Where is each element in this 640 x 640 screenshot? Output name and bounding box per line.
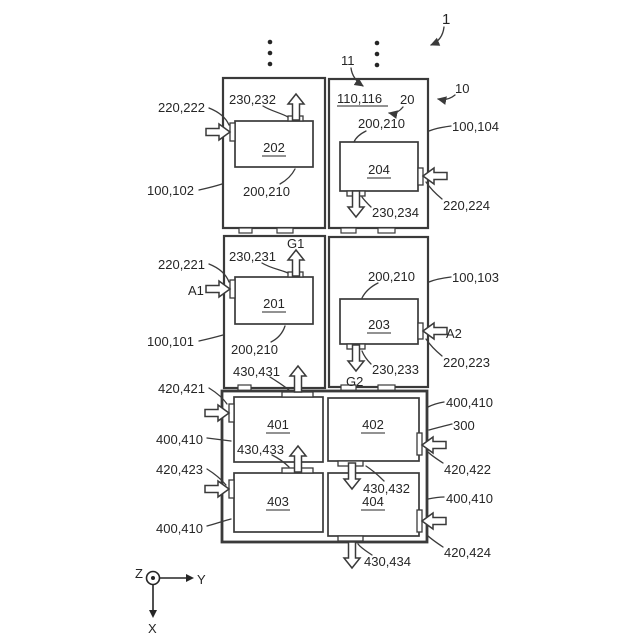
coordinate-axes: Z Y X	[135, 566, 206, 636]
label-outlet-434: 430,434	[364, 554, 411, 569]
label-axis-y: Y	[197, 572, 206, 587]
dot	[268, 40, 273, 45]
label-cell-203: 203	[368, 317, 390, 332]
gas-in-arrow-a2	[423, 323, 447, 339]
label-inlet-421: 420,421	[158, 381, 205, 396]
label-axis-x: X	[148, 621, 157, 636]
leader-200-210-tr	[354, 131, 366, 142]
pointer-11	[351, 68, 363, 86]
module-foot	[239, 228, 252, 233]
label-inlet-222: 220,222	[158, 100, 205, 115]
leader-400-410-lt	[207, 438, 231, 441]
label-unit-402: 402	[362, 417, 384, 432]
unit-404-bottom-tab	[338, 536, 363, 541]
label-inlet-223: 220,223	[443, 355, 490, 370]
flow-in-arrow-202	[206, 124, 230, 140]
leader-300	[429, 424, 452, 430]
coolant-out-arrow-434	[344, 542, 360, 568]
leader-400-410-rt	[428, 402, 444, 407]
flow-in-arrow-204	[423, 168, 447, 184]
label-assembly-1: 1	[442, 11, 450, 28]
dot	[268, 62, 273, 67]
stack-continues-ellipsis-right	[375, 41, 380, 68]
dot	[375, 63, 380, 68]
cell-204-right-tab	[418, 168, 423, 185]
label-outlet-433: 430,433	[237, 442, 284, 457]
label-module-10: 10	[455, 81, 469, 96]
leader-100-103	[429, 277, 451, 282]
label-unitref-rb: 400,410	[446, 491, 493, 506]
label-outlet-234: 230,234	[372, 205, 419, 220]
label-inlet-422: 420,422	[444, 462, 491, 477]
label-gas-out-g1: G1	[287, 236, 304, 251]
label-housing-101: 100,101	[147, 334, 194, 349]
label-gas-out-g2: G2	[346, 374, 363, 389]
label-unitref-lt: 400,410	[156, 432, 203, 447]
label-housing-104: 100,104	[452, 119, 499, 134]
module-top-right: 110,116 20 200,210 204 230,234 220,224 1…	[329, 79, 499, 233]
coolant-in-arrow-421	[205, 405, 229, 421]
y-axis-arrowhead-icon	[186, 574, 194, 582]
leader-200-210-tl	[280, 169, 295, 184]
stack-continues-ellipsis-left	[268, 40, 273, 67]
label-outlet-231: 230,231	[229, 249, 276, 264]
label-gas-in-a1: A1	[188, 283, 204, 298]
leader-400-410-rb	[428, 497, 444, 499]
leader-200-210-ml	[271, 326, 285, 342]
dot	[375, 52, 380, 57]
label-unit-403: 403	[267, 494, 289, 509]
patent-figure: 230,232 220,222 202 200,210 100,102 110,…	[0, 0, 640, 640]
x-axis-arrowhead-icon	[149, 610, 157, 618]
label-cell-202: 202	[263, 140, 285, 155]
label-cell-201: 201	[263, 296, 285, 311]
leader-100-104	[429, 126, 451, 131]
label-axis-z: Z	[135, 566, 143, 581]
label-inlet-221: 220,221	[158, 257, 205, 272]
dot	[268, 51, 273, 56]
module-top-left: 230,232 220,222 202 200,210 100,102	[147, 78, 325, 233]
leader-400-410-lb	[207, 519, 231, 526]
leader-100-101	[199, 335, 223, 341]
label-outlet-431: 430,431	[233, 364, 280, 379]
label-unitref-rt: 400,410	[446, 395, 493, 410]
label-gas-in-a2: A2	[446, 326, 462, 341]
dot	[375, 41, 380, 46]
label-spacer-ref: 20	[400, 92, 414, 107]
label-cells-ref: 110,116	[337, 91, 382, 106]
label-unit-401: 401	[267, 417, 289, 432]
module-foot	[341, 228, 356, 233]
label-cellref-mr: 200,210	[368, 269, 415, 284]
label-outlet-232: 230,232	[229, 92, 276, 107]
module-foot	[378, 228, 395, 233]
label-stack-11: 11	[341, 53, 355, 68]
label-inlet-423: 420,423	[156, 462, 203, 477]
label-cellref-ml: 200,210	[231, 342, 278, 357]
label-cellref-tr: 200,210	[358, 116, 405, 131]
leader-230-231	[262, 263, 288, 273]
label-unitref-lb: 400,410	[156, 521, 203, 536]
module-mid-right: 200,210 203 A2 220,223 230,233 G2 100,10…	[329, 237, 499, 391]
label-inlet-224: 220,224	[443, 198, 490, 213]
leader-420-422	[428, 452, 443, 463]
pointer-20	[389, 107, 403, 113]
cooling-assembly-300: 401 402 403 404 420,421 400,410 430,433 …	[156, 366, 493, 569]
label-cellref-tl: 200,210	[243, 184, 290, 199]
label-housing-103: 100,103	[452, 270, 499, 285]
gas-in-arrow-a1	[206, 281, 230, 297]
leader-100-102	[199, 184, 222, 190]
diagram-canvas: 230,232 220,222 202 200,210 100,102 110,…	[0, 0, 640, 640]
leader-230-234	[362, 197, 371, 207]
leader-220-221	[209, 264, 229, 282]
label-unit-404: 404	[362, 494, 384, 509]
leader-220-222	[209, 108, 229, 125]
label-outlet-432: 430,432	[363, 481, 410, 496]
label-housing-300: 300	[453, 418, 475, 433]
leader-420-424	[427, 535, 443, 547]
label-outlet-233: 230,233	[372, 362, 419, 377]
z-axis-dot	[151, 576, 155, 580]
assembly-references: 1 11 10	[341, 11, 469, 100]
leader-230-232	[263, 106, 288, 117]
leader-200-210-mr	[362, 283, 378, 298]
module-foot	[277, 228, 293, 233]
unit-402-right-tab	[417, 433, 422, 455]
label-inlet-424: 420,424	[444, 545, 491, 560]
label-cell-204: 204	[368, 162, 390, 177]
pointer-1	[431, 27, 444, 45]
label-housing-102: 100,102	[147, 183, 194, 198]
pointer-10	[438, 95, 455, 100]
